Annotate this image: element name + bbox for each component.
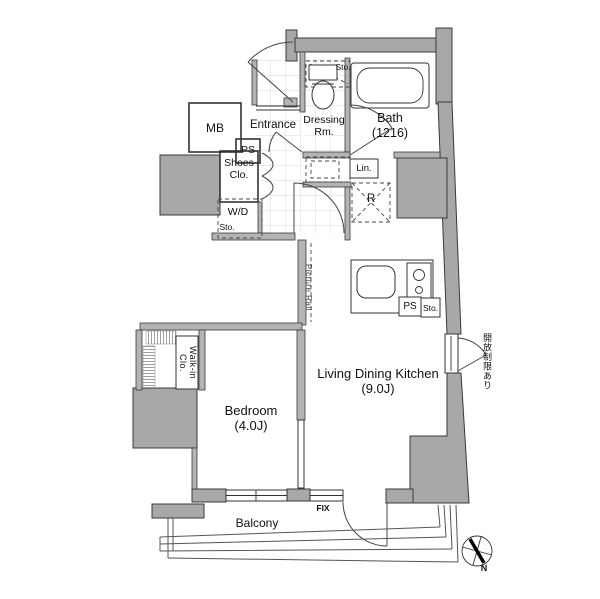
toilet-bowl: [312, 81, 334, 109]
picture-rail-label: Picture Rail: [304, 243, 313, 331]
ps-entrance-label: PS: [236, 144, 260, 156]
balcony-railing: [160, 505, 458, 562]
shoes-closet-label: Shoes Clo.: [220, 157, 258, 182]
floor-plan-drawing: [0, 0, 600, 599]
bath-label: Bath (1216): [352, 111, 428, 141]
compass-north-label: N: [477, 563, 491, 574]
ldk-label: Living Dining Kitchen (9.0J): [303, 366, 453, 397]
closet-hatch-top: [146, 331, 176, 344]
dressing-room-label: Dressing Rm.: [301, 114, 347, 139]
ps-kitchen-label: PS: [399, 301, 421, 313]
fix-window-label: FIX: [303, 503, 343, 513]
opening-restriction-label: 開放制限あり: [481, 331, 494, 391]
kitchen-sink: [357, 266, 395, 298]
compass-needle: [470, 539, 484, 563]
balcony-label: Balcony: [222, 516, 292, 530]
compass: [462, 536, 492, 566]
toilet-storage-label: Sto.: [331, 62, 355, 72]
closet-hatch-left: [143, 346, 155, 389]
wd-storage-label: W/D: [216, 206, 260, 218]
walk-in-closet-label: Walk-in Clo.: [177, 339, 198, 387]
bedroom-label: Bedroom (4.0J): [202, 403, 300, 434]
refrigerator-label: R: [358, 193, 384, 207]
kitchen-storage-label: Sto.: [420, 303, 441, 313]
wd-storage-sub-label: Sto.: [214, 222, 240, 232]
linen-label: Lin.: [350, 163, 378, 174]
mb-label: MB: [190, 121, 240, 135]
floor-plan: MB PS Entrance Shoes Clo. W/D Sto. Dress…: [0, 0, 600, 599]
entrance-label: Entrance: [243, 119, 303, 133]
